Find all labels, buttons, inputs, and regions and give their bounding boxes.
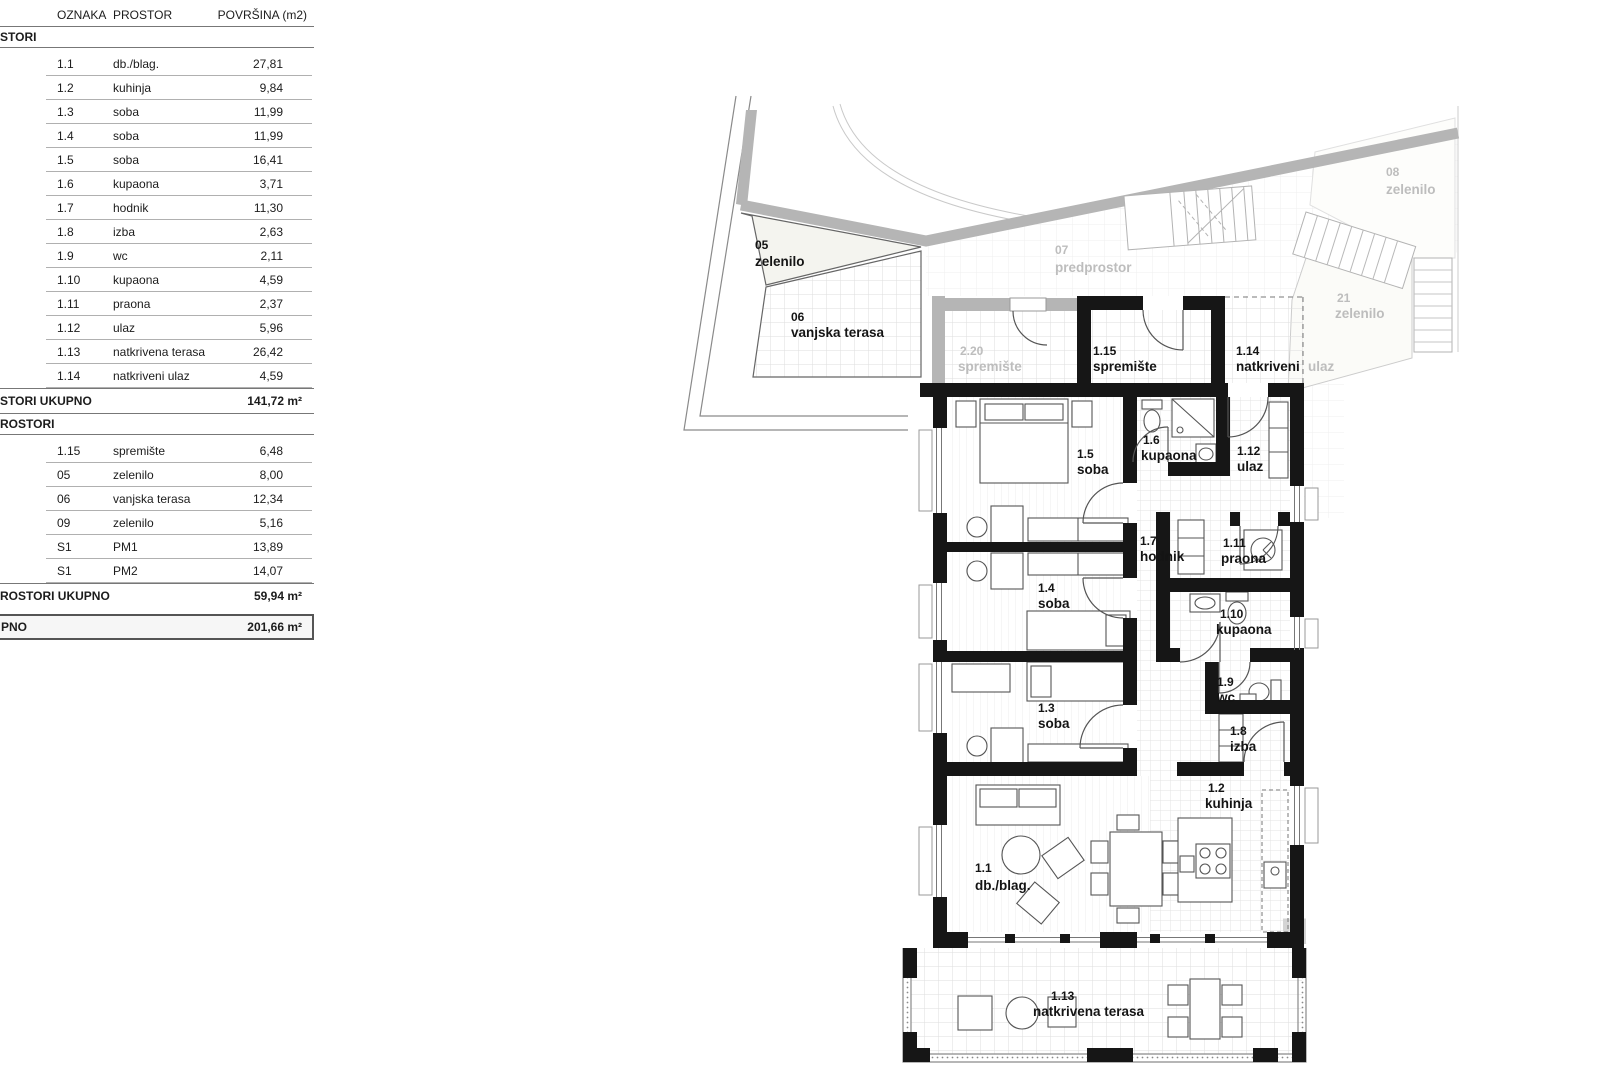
kitchen-sink-small — [1180, 856, 1194, 872]
label-15-name: soba — [1077, 462, 1109, 477]
dining-table — [1110, 832, 1162, 906]
label-06-name: vanjska terasa — [791, 325, 885, 340]
label-18-name: izba — [1230, 739, 1257, 754]
label-12-num: 1.2 — [1208, 781, 1225, 795]
label-11-num: 1.1 — [975, 861, 992, 875]
toilet-tank — [1226, 592, 1248, 601]
wardrobe — [1269, 402, 1288, 478]
label-05-name: zelenilo — [755, 254, 805, 269]
dining-chair — [1163, 873, 1180, 895]
nightstand — [956, 401, 976, 427]
floor-plan-drawing: u — [0, 0, 1600, 1067]
terrace-chair — [1168, 985, 1188, 1005]
stairs-right — [1414, 258, 1452, 352]
hall-cabinet — [1178, 520, 1204, 574]
sofa-cushion — [980, 789, 1017, 807]
toilet-tank — [1142, 400, 1162, 409]
label-21-name: zelenilo — [1335, 306, 1385, 321]
nightstand — [1072, 401, 1092, 427]
label-17-name: hodnik — [1140, 549, 1185, 564]
terrace-chair — [1222, 1017, 1242, 1037]
label-08-num: 08 — [1386, 165, 1400, 179]
label-13-num: 1.3 — [1038, 701, 1055, 715]
driveway-curve — [833, 106, 1037, 224]
floor-plan-sheet: OZNAKA PROSTOR POVRŠINA (m2) STORI 1.1db… — [0, 0, 1600, 1067]
label-13-name: soba — [1038, 716, 1070, 731]
dining-chair — [1091, 841, 1108, 863]
terrace-chair — [958, 996, 992, 1030]
label-14-num: 1.4 — [1038, 581, 1055, 595]
label-15-num: 1.5 — [1077, 447, 1094, 461]
label-21-num: 21 — [1337, 291, 1351, 305]
label-07-num: 07 — [1055, 243, 1069, 257]
bench — [1028, 744, 1128, 762]
pillow — [1025, 404, 1063, 420]
label-111-num: 1.11 — [1223, 536, 1246, 550]
label-110-num: 1.10 — [1220, 607, 1244, 621]
chair — [967, 736, 987, 756]
label-115-num: 1.15 — [1093, 344, 1117, 358]
label-05-num: 05 — [755, 238, 769, 252]
label-111-name: praona — [1221, 551, 1267, 566]
dresser — [952, 664, 1010, 692]
label-113-name: natkrivena terasa — [1033, 1004, 1145, 1019]
label-14-name: soba — [1038, 596, 1070, 611]
dining-chair — [1117, 815, 1139, 830]
dining-chair — [1163, 841, 1180, 863]
label-19-num: 1.9 — [1217, 675, 1234, 689]
label-16-num: 1.6 — [1143, 433, 1160, 447]
label-11-name: db./blag. — [975, 878, 1031, 893]
label-19-name: wc — [1216, 690, 1236, 705]
label-06-num: 06 — [791, 310, 805, 324]
label-112-num: 1.12 — [1237, 444, 1261, 458]
pillow — [985, 404, 1023, 420]
label-07-name: predprostor — [1055, 260, 1132, 275]
label-114-name2: ulaz — [1308, 359, 1335, 374]
terrace-table — [1190, 979, 1220, 1039]
sofa-cushion — [1019, 789, 1056, 807]
terrace-chair — [1222, 985, 1242, 1005]
desk — [991, 506, 1023, 544]
label-114-name: natkriveni — [1236, 359, 1300, 374]
label-114-num: 1.14 — [1236, 344, 1260, 358]
label-110-name: kupaona — [1216, 622, 1272, 637]
label-08-name: zelenilo — [1386, 182, 1436, 197]
label-16-name: kupaona — [1141, 448, 1197, 463]
label-220-num: 2.20 — [960, 344, 984, 358]
shelf — [1219, 714, 1243, 762]
dining-chair — [1091, 873, 1108, 895]
dining-chair — [1117, 908, 1139, 923]
chair — [967, 561, 987, 581]
gray-wall-vertical — [736, 110, 757, 206]
terrace-chair — [1168, 1017, 1188, 1037]
label-115-name: spremište — [1093, 359, 1157, 374]
chair — [967, 517, 987, 537]
desk — [991, 553, 1023, 589]
label-12-name: kuhinja — [1205, 796, 1253, 811]
label-113-num: 1.13 — [1051, 989, 1075, 1003]
desk — [991, 728, 1023, 764]
label-18-num: 1.8 — [1230, 724, 1247, 738]
coffee-table — [1002, 836, 1040, 874]
label-17-num: 1.7 — [1140, 534, 1157, 548]
label-220-name: spremište — [958, 359, 1022, 374]
pillow — [1031, 666, 1051, 697]
label-112-name: ulaz — [1237, 459, 1264, 474]
stairs-top — [1124, 186, 1256, 250]
